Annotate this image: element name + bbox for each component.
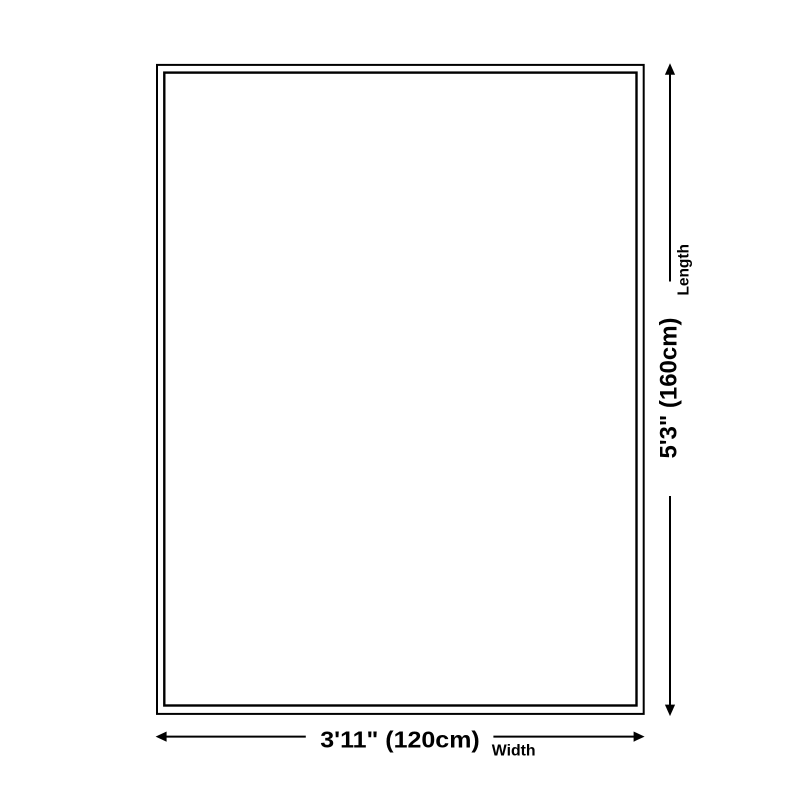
svg-text:Length: Length [676, 244, 693, 296]
svg-text:5'3" (160cm): 5'3" (160cm) [656, 318, 683, 459]
svg-text:Width: Width [492, 743, 536, 760]
svg-text:3'11" (120cm): 3'11" (120cm) [320, 726, 480, 752]
